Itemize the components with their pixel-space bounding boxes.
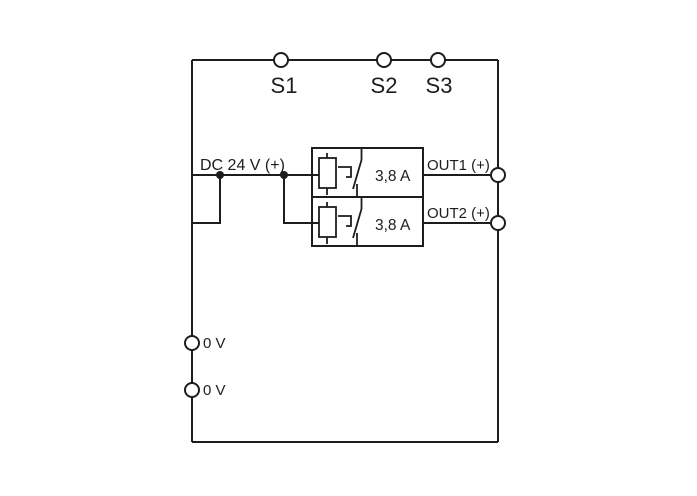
terminal-0v-2 — [185, 383, 199, 397]
out2-label: OUT2 (+) — [427, 205, 490, 222]
terminal-s1 — [274, 53, 288, 67]
terminal-s2-label: S2 — [371, 73, 398, 98]
channel2-rating-label: 3,8 A — [375, 217, 411, 234]
terminal-out1 — [491, 168, 505, 182]
terminal-0v-1 — [185, 336, 199, 350]
diagram-canvas: S1 S2 S3 DC 24 V (+) 3,8 A 3,8 A OUT1 (+… — [0, 0, 697, 496]
terminal-out2 — [491, 216, 505, 230]
zero-volt-label-1: 0 V — [203, 335, 226, 352]
fuse-icon — [319, 158, 336, 188]
fuse-icon — [319, 207, 336, 237]
terminal-s3-label: S3 — [426, 73, 453, 98]
outer-frame — [192, 60, 498, 442]
terminal-s1-label: S1 — [271, 73, 298, 98]
terminal-s3 — [431, 53, 445, 67]
out1-label: OUT1 (+) — [427, 157, 490, 174]
channel1-rating-label: 3,8 A — [375, 168, 411, 185]
terminal-s2 — [377, 53, 391, 67]
circuit-diagram: S1 S2 S3 DC 24 V (+) 3,8 A 3,8 A OUT1 (+… — [0, 0, 697, 496]
branch-wire-1 — [192, 175, 220, 223]
input-voltage-label: DC 24 V (+) — [200, 157, 285, 174]
zero-volt-label-2: 0 V — [203, 382, 226, 399]
